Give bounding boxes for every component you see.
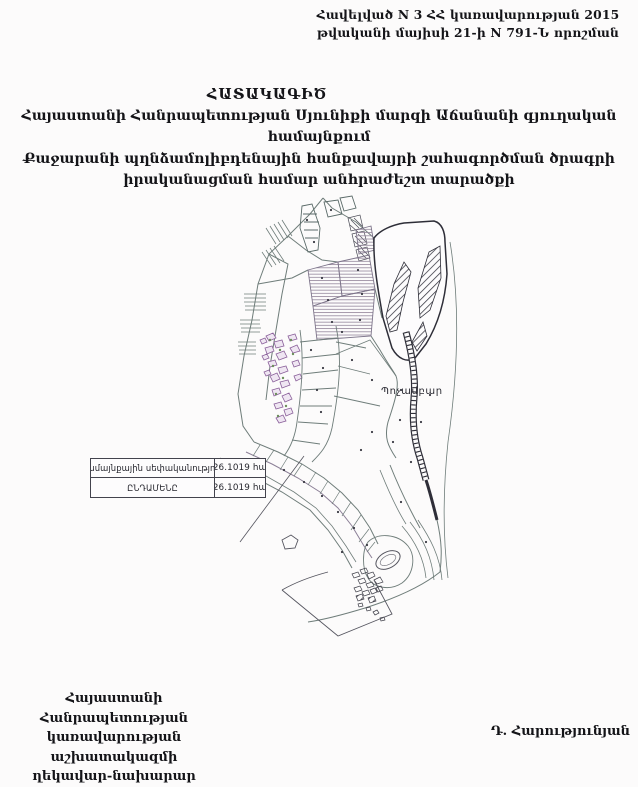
map-village-cluster [260,333,302,423]
annex-line-1: Հավելված N 3 [317,7,423,22]
tailings-area-label: Պոչամբար [381,386,443,397]
cadastral-map-figure [70,190,570,670]
legend-row-label: Համայնքային սեփականություն [91,459,215,478]
document-title-block: ՀԱՏԱԿԱԳԻԾ Հայաստանի Հանրապետության Սյուն… [0,84,638,192]
signatory-line-2: կառավարության աշխատակազմի [5,728,223,767]
signatory-name: Դ. Հարությունյան [430,724,630,739]
title-line-4: իրականացման համար անհրաժեշտ տարածքի [0,170,638,192]
title-line-3: Քաջարանի պղնձամոլիբդենային հանքավայրի շա… [0,149,638,171]
title-word: ՀԱՏԱԿԱԳԻԾ [0,84,534,106]
signatory-line-1: Հայաստանի Հանրապետության [5,689,223,728]
legend-total-label: ԸՆԴԱՄԵՆԸ [91,478,215,497]
map-pentagon-landmark [282,535,298,549]
annex-line-3: մայիսի 21-ի N 791-Ն որոշման [395,25,619,40]
map-striped-parcels [308,226,375,340]
signatory-line-3: ղեկավար-նախարար [5,767,223,787]
legend-total-value: 26.1019 հա [215,478,265,497]
scanned-document-page: { "document": { "annex": { "line1": "Հավ… [0,0,638,759]
signatory-title-block: Հայաստանի Հանրապետության կառավարության ա… [5,689,223,787]
map-bottom-cluster [352,568,385,621]
legend-row-value: 26.1019 հա [215,459,265,478]
map-top-parcels [300,196,356,252]
map-mid-parcels [284,326,380,462]
map-ladder-strip [406,332,437,520]
map-oval-feature [364,520,443,588]
annex-reference-block: Հավելված N 3 ՀՀ կառավարության 2015 թվակա… [298,6,638,41]
area-legend-table: Համայնքային սեփականություն 26.1019 հա ԸՆ… [90,458,266,498]
cadastral-map-svg [70,190,570,670]
title-line-2: Հայաստանի Հանրապետության Սյունիքի մարզի … [0,106,638,149]
